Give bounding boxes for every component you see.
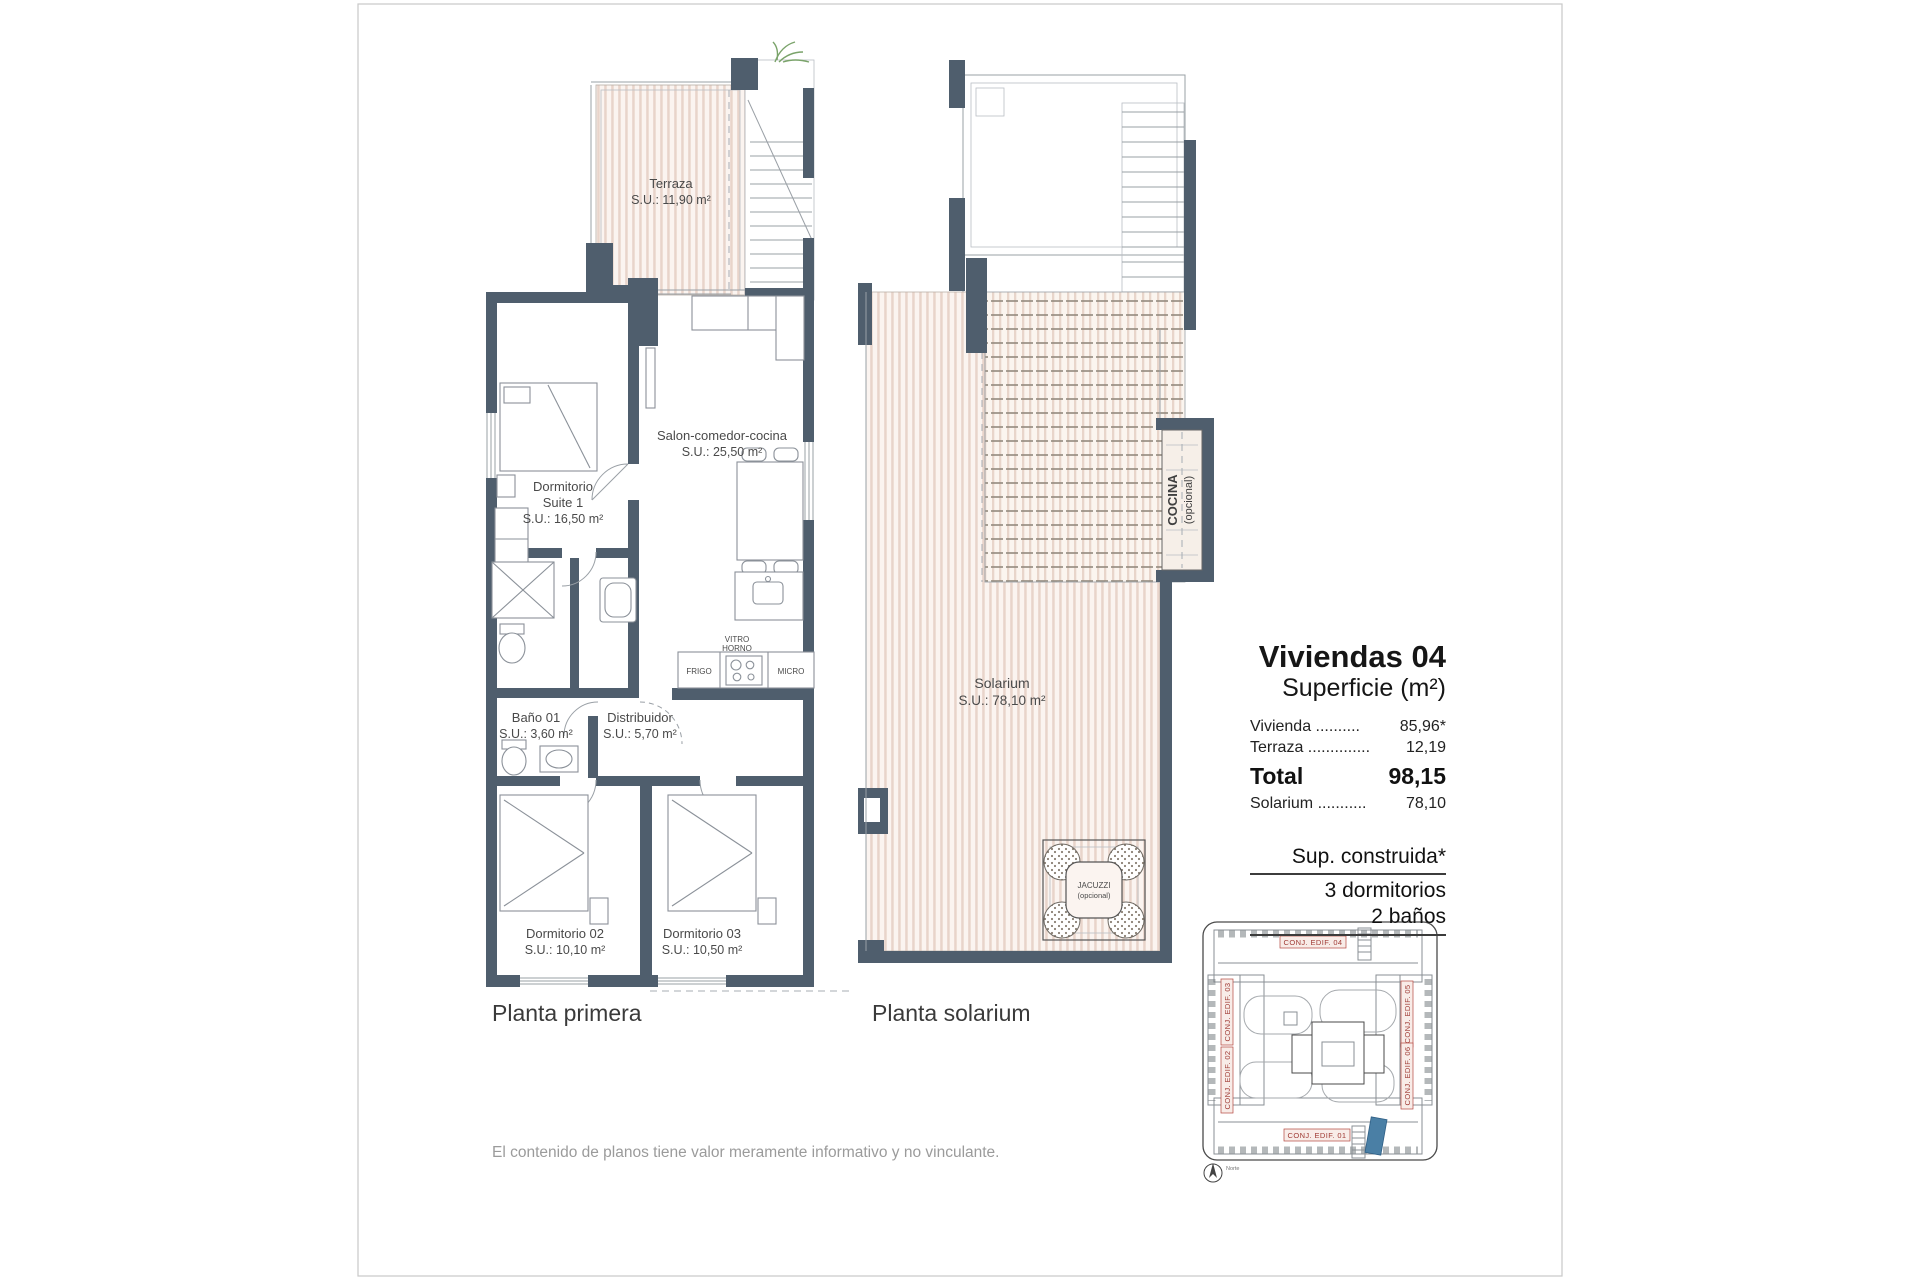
- suite1-label-1: Dormitorio: [533, 479, 593, 494]
- bano01-area: S.U.: 3,60 m²: [499, 727, 573, 741]
- salon-label: Salon-comedor-cocina: [657, 428, 788, 443]
- svg-text:CONJ. EDIF. 04: CONJ. EDIF. 04: [1284, 938, 1343, 947]
- site-map: CONJ. EDIF. 04 CONJ. EDIF. 01 CONJ. EDIF…: [1203, 922, 1437, 1182]
- svg-text:CONJ. EDIF. 05: CONJ. EDIF. 05: [1403, 985, 1412, 1044]
- surface-rows: Vivienda .......... 85,96* Terraza .....…: [1250, 716, 1446, 814]
- svg-text:CONJ. EDIF. 02: CONJ. EDIF. 02: [1223, 1051, 1232, 1110]
- features-block: Sup. construida* 3 dormitorios 2 baños: [1250, 844, 1446, 936]
- jacuzzi-label: JACUZZI: [1078, 881, 1111, 890]
- suite1-label-2: Suite 1: [543, 495, 583, 510]
- surface-subtitle: Superficie (m²): [1250, 674, 1446, 702]
- caption-planta-primera: Planta primera: [492, 1000, 642, 1027]
- map-label-bottom: CONJ. EDIF. 01: [1284, 1129, 1350, 1141]
- row-vivienda: Vivienda .......... 85,96*: [1250, 716, 1446, 737]
- tv-unit: [646, 348, 655, 408]
- dorm03-area: S.U.: 10,50 m²: [662, 943, 743, 957]
- bano01-label: Baño 01: [512, 710, 560, 725]
- svg-text:CONJ. EDIF. 01: CONJ. EDIF. 01: [1288, 1131, 1347, 1140]
- disclaimer-text: El contenido de planos tiene valor meram…: [492, 1144, 999, 1162]
- cocina-unit: COCINA (opcional): [1162, 430, 1202, 570]
- unit-title: Viviendas 04: [1250, 640, 1446, 674]
- row-total: Total 98,15: [1250, 761, 1446, 791]
- caption-planta-solarium: Planta solarium: [872, 1000, 1031, 1027]
- map-label-left-upper: CONJ. EDIF. 03: [1221, 979, 1233, 1045]
- cocina-label-2: (opcional): [1183, 476, 1195, 524]
- solarium-label: Solarium: [974, 675, 1029, 691]
- kitchen-horno-label: HORNO: [722, 644, 752, 653]
- suite1-area: S.U.: 16,50 m²: [523, 512, 604, 526]
- floor-plan-sheet: Terraza S.U.: 11,90 m² Salon-comedor-coc…: [0, 0, 1920, 1280]
- kitchen-island: [735, 572, 803, 620]
- kitchen-frigo-label: FRIGO: [686, 667, 711, 676]
- svg-text:CONJ. EDIF. 06: CONJ. EDIF. 06: [1403, 1047, 1412, 1106]
- sup-construida: Sup. construida*: [1250, 844, 1446, 875]
- row-solarium: Solarium ........... 78,10: [1250, 793, 1446, 814]
- svg-text:Norte: Norte: [1226, 1166, 1239, 1172]
- kitchen-micro-label: MICRO: [778, 667, 805, 676]
- cocina-label: COCINA: [1165, 474, 1180, 526]
- terraza-label: Terraza: [649, 176, 693, 191]
- distribuidor-area: S.U.: 5,70 m²: [603, 727, 677, 741]
- plan-drawing: Terraza S.U.: 11,90 m² Salon-comedor-coc…: [0, 0, 1920, 1280]
- dorm02-label: Dormitorio 02: [526, 926, 604, 941]
- dorm02-area: S.U.: 10,10 m²: [525, 943, 606, 957]
- banos-count: 2 baños: [1250, 904, 1446, 936]
- dining-table: [737, 448, 803, 574]
- solarium-area: S.U.: 78,10 m²: [958, 693, 1046, 708]
- map-label-right-upper: CONJ. EDIF. 05: [1401, 981, 1413, 1047]
- dorm03-label: Dormitorio 03: [663, 926, 741, 941]
- terraza-area: S.U.: 11,90 m²: [631, 193, 711, 207]
- map-label-left-lower: CONJ. EDIF. 02: [1221, 1047, 1233, 1113]
- map-label-top: CONJ. EDIF. 04: [1280, 936, 1346, 948]
- distribuidor-label: Distribuidor: [607, 710, 673, 725]
- info-panel: Viviendas 04 Superficie (m²) Vivienda ..…: [1250, 640, 1446, 936]
- kitchen-vitro-label: VITRO: [725, 635, 749, 644]
- row-terraza: Terraza .............. 12,19: [1250, 737, 1446, 758]
- salon-area: S.U.: 25,50 m²: [682, 445, 763, 459]
- svg-text:CONJ. EDIF. 03: CONJ. EDIF. 03: [1223, 983, 1232, 1042]
- jacuzzi-label-2: (opcional): [1078, 891, 1111, 900]
- map-label-right-lower: CONJ. EDIF. 06: [1401, 1043, 1413, 1109]
- dormitorios-count: 3 dormitorios: [1250, 875, 1446, 904]
